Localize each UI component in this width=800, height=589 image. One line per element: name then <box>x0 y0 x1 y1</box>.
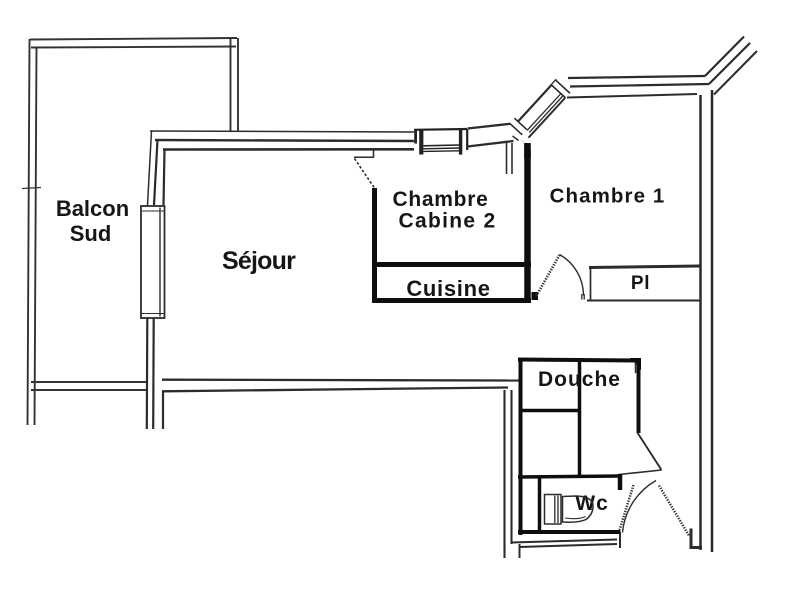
svg-text:Séjour: Séjour <box>222 247 296 275</box>
svg-text:Chambre: Chambre <box>393 188 489 211</box>
svg-text:Pl: Pl <box>631 273 650 294</box>
svg-text:Cuisine: Cuisine <box>406 276 490 301</box>
svg-text:Douche: Douche <box>538 368 621 391</box>
svg-text:Cabine 2: Cabine 2 <box>399 210 497 233</box>
svg-text:Sud: Sud <box>70 221 112 246</box>
svg-text:Chambre 1: Chambre 1 <box>550 185 666 208</box>
svg-text:Balcon: Balcon <box>56 196 129 221</box>
